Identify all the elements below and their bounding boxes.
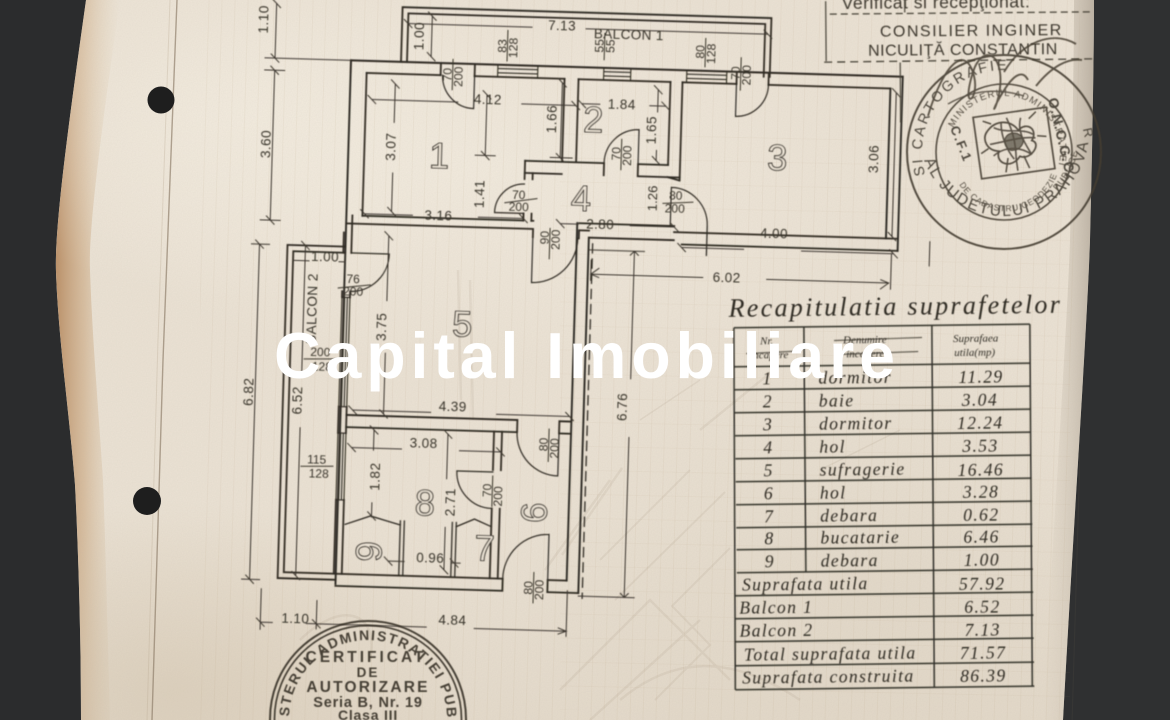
svg-text:3.53: 3.53 bbox=[961, 436, 998, 456]
svg-text:AUTORIZARE: AUTORIZARE bbox=[306, 679, 429, 696]
svg-text:Suprafaea: Suprafaea bbox=[953, 333, 999, 346]
svg-text:Recapitulatia suprafetelor: Recapitulatia suprafetelor bbox=[727, 290, 1062, 323]
svg-text:Suprafata construita: Suprafata construita bbox=[742, 666, 915, 688]
svg-text:86.39: 86.39 bbox=[960, 665, 1007, 686]
svg-text:200: 200 bbox=[740, 65, 755, 86]
svg-text:200: 200 bbox=[532, 579, 547, 600]
svg-text:8: 8 bbox=[414, 482, 435, 524]
svg-text:1.66: 1.66 bbox=[544, 105, 560, 134]
svg-text:Capital Imobiliare: Capital Imobiliare bbox=[274, 320, 900, 392]
svg-text:11.29: 11.29 bbox=[958, 366, 1003, 387]
svg-text:1.41: 1.41 bbox=[472, 180, 488, 209]
svg-text:2: 2 bbox=[763, 391, 773, 411]
svg-text:4: 4 bbox=[570, 178, 591, 220]
svg-text:9: 9 bbox=[765, 551, 775, 571]
svg-text:Suprafata utila: Suprafata utila bbox=[742, 573, 869, 595]
svg-text:57.92: 57.92 bbox=[959, 573, 1006, 594]
svg-text:debara: debara bbox=[821, 550, 879, 571]
svg-text:Verificat si recepţionat:: Verificat si recepţionat: bbox=[842, 0, 1031, 13]
svg-text:3.06: 3.06 bbox=[866, 145, 882, 174]
svg-text:baie: baie bbox=[819, 390, 855, 410]
svg-text:4.84: 4.84 bbox=[438, 612, 466, 628]
svg-text:3.07: 3.07 bbox=[383, 132, 399, 161]
svg-text:6: 6 bbox=[764, 483, 774, 503]
svg-text:1.00: 1.00 bbox=[964, 550, 1000, 570]
svg-text:1.84: 1.84 bbox=[608, 96, 636, 112]
svg-text:Balcon 2: Balcon 2 bbox=[739, 620, 813, 641]
svg-text:6: 6 bbox=[514, 502, 555, 523]
svg-text:6.76: 6.76 bbox=[614, 393, 630, 422]
svg-text:6.82: 6.82 bbox=[241, 377, 257, 406]
svg-text:7.13: 7.13 bbox=[964, 620, 1000, 640]
svg-text:sufragerie: sufragerie bbox=[820, 459, 906, 480]
svg-text:debara: debara bbox=[820, 505, 878, 526]
svg-text:4: 4 bbox=[763, 437, 773, 457]
svg-text:3.08: 3.08 bbox=[409, 435, 437, 451]
svg-text:8: 8 bbox=[764, 528, 774, 548]
svg-text:Clasa III: Clasa III bbox=[338, 707, 398, 720]
svg-text:0.62: 0.62 bbox=[963, 505, 999, 525]
svg-text:128: 128 bbox=[506, 37, 521, 58]
svg-text:DE: DE bbox=[357, 665, 380, 680]
svg-text:3.16: 3.16 bbox=[424, 208, 452, 224]
svg-text:1.00: 1.00 bbox=[311, 249, 339, 265]
svg-text:NICULIŢĂ CONSTANTIN: NICULIŢĂ CONSTANTIN bbox=[868, 39, 1058, 60]
svg-text:12.24: 12.24 bbox=[957, 412, 1004, 433]
svg-text:dormitor: dormitor bbox=[819, 413, 893, 434]
svg-text:7: 7 bbox=[764, 506, 774, 526]
svg-text:55: 55 bbox=[603, 39, 617, 53]
svg-text:3: 3 bbox=[767, 137, 788, 179]
svg-text:6.02: 6.02 bbox=[712, 270, 740, 286]
svg-text:128: 128 bbox=[309, 467, 330, 482]
svg-text:1.10: 1.10 bbox=[281, 611, 309, 627]
svg-text:2.71: 2.71 bbox=[443, 488, 459, 517]
svg-text:3.60: 3.60 bbox=[258, 130, 274, 159]
svg-text:3.04: 3.04 bbox=[961, 390, 998, 410]
svg-text:128: 128 bbox=[704, 43, 719, 64]
svg-text:CERTIFICAT: CERTIFICAT bbox=[306, 649, 427, 666]
svg-text:utila(mp): utila(mp) bbox=[954, 347, 995, 360]
svg-text:3: 3 bbox=[762, 414, 773, 434]
svg-text:1.10: 1.10 bbox=[256, 5, 272, 34]
svg-text:4.12: 4.12 bbox=[474, 91, 502, 107]
svg-text:Total suprafata utila: Total suprafata utila bbox=[744, 643, 917, 665]
svg-text:115: 115 bbox=[307, 452, 327, 467]
svg-text:2: 2 bbox=[583, 99, 604, 141]
svg-text:6.46: 6.46 bbox=[963, 527, 999, 547]
svg-text:1.26: 1.26 bbox=[645, 185, 661, 211]
svg-text:200: 200 bbox=[620, 145, 635, 166]
svg-text:1.82: 1.82 bbox=[367, 462, 383, 491]
svg-text:9: 9 bbox=[348, 541, 389, 562]
svg-text:200: 200 bbox=[547, 438, 562, 459]
svg-text:hol: hol bbox=[820, 482, 847, 502]
svg-text:0.96: 0.96 bbox=[416, 550, 444, 566]
svg-text:7: 7 bbox=[474, 527, 495, 569]
svg-text:bucatarie: bucatarie bbox=[820, 527, 900, 548]
svg-text:CONSILIER INGINER: CONSILIER INGINER bbox=[880, 22, 1063, 41]
svg-text:Balcon 1: Balcon 1 bbox=[739, 597, 813, 618]
svg-text:16.46: 16.46 bbox=[958, 459, 1005, 480]
svg-text:4.39: 4.39 bbox=[439, 398, 467, 414]
svg-text:71.57: 71.57 bbox=[960, 642, 1007, 663]
svg-text:200: 200 bbox=[451, 66, 466, 87]
svg-text:7.13: 7.13 bbox=[548, 18, 576, 34]
svg-text:4.00: 4.00 bbox=[760, 226, 788, 242]
svg-text:1: 1 bbox=[429, 135, 450, 177]
svg-text:3.28: 3.28 bbox=[962, 482, 999, 502]
svg-text:200: 200 bbox=[549, 229, 564, 250]
svg-text:6.52: 6.52 bbox=[964, 597, 1000, 617]
svg-text:1.65: 1.65 bbox=[644, 116, 660, 145]
svg-text:1.00: 1.00 bbox=[411, 22, 427, 51]
svg-text:5: 5 bbox=[764, 460, 774, 480]
svg-text:200: 200 bbox=[491, 486, 506, 507]
svg-text:hol: hol bbox=[819, 436, 846, 456]
